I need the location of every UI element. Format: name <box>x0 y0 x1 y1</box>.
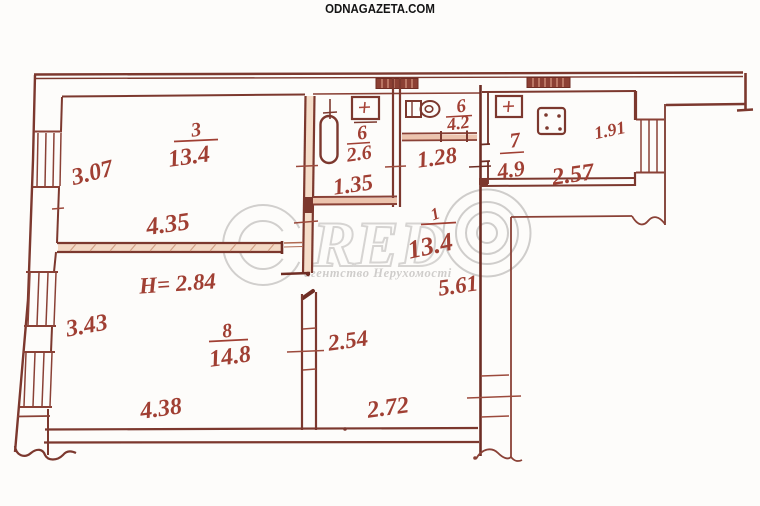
svg-text:3.43: 3.43 <box>63 310 110 343</box>
svg-text:H= 2.84: H= 2.84 <box>137 268 217 298</box>
svg-text:8: 8 <box>221 319 234 342</box>
svg-text:1.91: 1.91 <box>592 117 627 143</box>
svg-text:1.35: 1.35 <box>331 169 374 199</box>
svg-text:4.9: 4.9 <box>495 155 527 184</box>
svg-text:4.35: 4.35 <box>143 208 191 241</box>
svg-text:2.54: 2.54 <box>325 325 369 355</box>
svg-text:3: 3 <box>189 118 203 141</box>
svg-text:агентство Нерухомості: агентство Нерухомості <box>304 266 452 280</box>
svg-text:7: 7 <box>508 127 523 152</box>
svg-text:2.72: 2.72 <box>364 392 410 424</box>
svg-text:1.28: 1.28 <box>415 142 459 172</box>
svg-text:13.4: 13.4 <box>166 141 211 173</box>
svg-text:4.38: 4.38 <box>137 393 183 425</box>
svg-text:3.07: 3.07 <box>68 155 117 191</box>
svg-text:14.8: 14.8 <box>207 341 252 373</box>
svg-text:5.61: 5.61 <box>436 270 479 300</box>
svg-text:2.6: 2.6 <box>344 141 373 166</box>
